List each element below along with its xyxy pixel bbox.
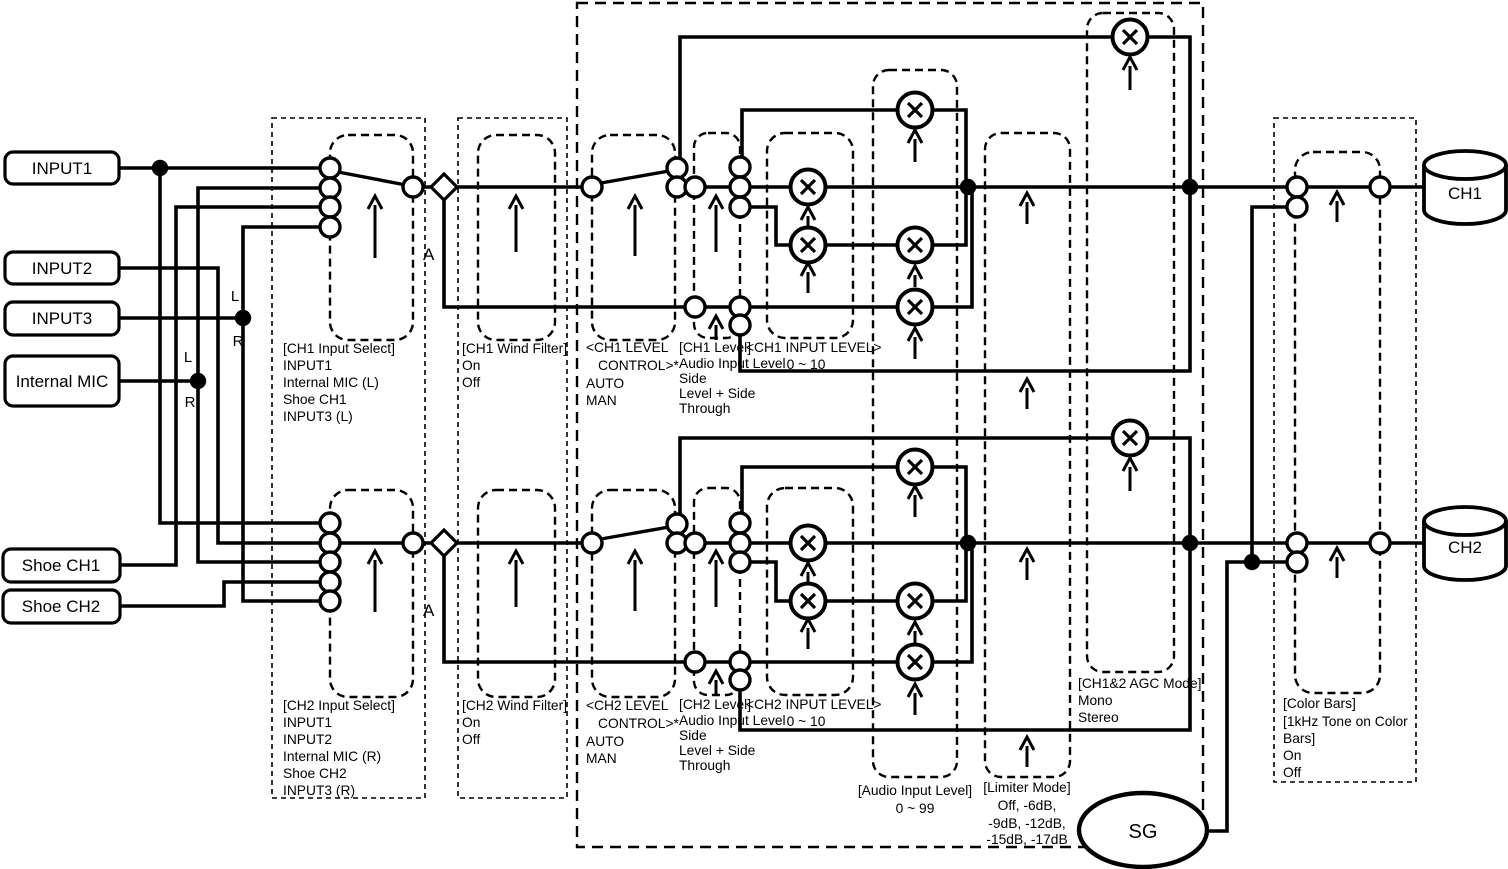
ch1-level-control-opt: AUTO: [586, 376, 624, 391]
ch2-level-control-opt: AUTO: [586, 734, 624, 749]
multiplier-icon: [791, 170, 826, 205]
limiter-mode-opt: Off, -6dB,: [998, 798, 1057, 813]
ch2-input-select-opt: INPUT3 (R): [283, 783, 355, 798]
mic-left-label: L: [184, 349, 192, 366]
input2-label: INPUT2: [32, 259, 92, 278]
contact-node: [403, 533, 423, 553]
color-bars-title2: [1kHz Tone on Color: [1283, 714, 1408, 729]
up-arrow-icon: [1123, 458, 1137, 491]
contact-node: [730, 533, 750, 553]
up-arrow-icon: [509, 196, 523, 252]
ch1-level-opt: Level + Side: [679, 386, 756, 401]
multiplier-icon: [898, 645, 933, 680]
agc-mode-opt: Mono: [1078, 693, 1113, 708]
signal-generator-label: SG: [1129, 821, 1158, 843]
cylinder-top: [1424, 151, 1506, 179]
switch-arm: [338, 172, 406, 185]
ch1-input-select-opt: INPUT1: [283, 358, 332, 373]
up-arrow-icon: [509, 551, 523, 607]
up-arrow-icon: [801, 563, 815, 582]
contact-node: [320, 197, 340, 217]
agc-mode-title: [CH1&2 AGC Mode]: [1078, 676, 1201, 691]
switch-arm: [601, 527, 669, 539]
color-bars-opt: Off: [1283, 765, 1301, 780]
junction-dot: [1182, 179, 1198, 195]
up-arrow-icon: [801, 619, 815, 649]
contact-node: [730, 552, 750, 572]
agc-mode-opt: Stereo: [1078, 710, 1119, 725]
cylinder-top: [1424, 507, 1506, 535]
dashed-option-box: [330, 490, 413, 697]
multiplier-icon: [898, 290, 933, 325]
ch2-level-opt: Side: [679, 728, 707, 743]
audio-block-diagram: INPUT1 INPUT2 INPUT3 Internal MIC Shoe C…: [0, 0, 1508, 869]
contact-node: [685, 652, 705, 672]
up-arrow-icon: [1020, 193, 1034, 224]
up-arrow-icon: [709, 551, 723, 607]
contact-node: [730, 670, 750, 690]
branch-a-ch2: A: [423, 601, 435, 620]
audio-input-level-range: 0 ~ 99: [896, 801, 935, 816]
up-arrow-icon: [628, 196, 642, 256]
ch2-level-opt: Audio Input Level: [679, 713, 786, 728]
contact-node: [685, 297, 705, 317]
multiplier-icon: [898, 584, 933, 619]
contact-node: [320, 533, 340, 553]
contact-node: [320, 572, 340, 592]
contact-node: [730, 177, 750, 197]
ch2-wind-filter-opt: On: [462, 715, 480, 730]
contact-node: [320, 158, 340, 178]
shoe-ch1-label: Shoe CH1: [22, 556, 100, 575]
ch1-wind-filter-opt: On: [462, 358, 480, 373]
up-arrow-icon: [801, 263, 815, 293]
color-bars-opt: On: [1283, 748, 1301, 763]
wire: [932, 467, 966, 543]
multiplier-icon: [898, 450, 933, 485]
up-arrow-icon: [908, 486, 922, 517]
contact-node: [1287, 552, 1307, 572]
branch-a-ch1: A: [423, 245, 435, 264]
shoe-ch2-label: Shoe CH2: [22, 597, 100, 616]
wire: [1252, 207, 1287, 562]
input3-left-label: L: [231, 288, 239, 305]
ch1-cylinder-label: CH1: [1448, 184, 1482, 203]
ch2-input-select-opt: INPUT2: [283, 732, 332, 747]
up-arrow-icon: [709, 196, 723, 252]
ch2-wind-filter-title: [CH2 Wind Filter]: [462, 698, 567, 713]
wire: [932, 110, 966, 187]
ch1-level-control-title: <CH1 LEVEL: [586, 340, 669, 355]
ch1-input-level-range: 0 ~ 10: [787, 357, 826, 372]
ch2-input-level-title: <CH2 INPUT LEVEL>: [746, 697, 881, 712]
dashed-option-box: [1087, 13, 1174, 672]
wire: [680, 37, 1190, 187]
ch2-level-opt: Level + Side: [679, 743, 756, 758]
contact-node: [1370, 533, 1390, 553]
ch1-input-level-title: <CH1 INPUT LEVEL>: [746, 340, 881, 355]
up-arrow-icon: [908, 622, 922, 643]
wire: [444, 200, 695, 307]
junction-dot: [190, 373, 206, 389]
up-arrow-icon: [908, 266, 922, 287]
ch1-wind-filter-title: [CH1 Wind Filter]: [462, 341, 567, 356]
contact-node: [667, 158, 687, 178]
ch1-level-opt: Side: [679, 371, 707, 386]
color-bars-title3: Bars]: [1283, 731, 1315, 746]
internal-mic-label: Internal MIC: [16, 372, 109, 391]
contact-node: [320, 178, 340, 198]
up-arrow-icon: [1330, 548, 1344, 578]
multiplier-icon: [791, 228, 826, 263]
limiter-mode-opt: -9dB, -12dB,: [988, 816, 1065, 831]
up-arrow-icon: [368, 551, 382, 612]
ch1-input-select-opt: INPUT3 (L): [283, 409, 353, 424]
up-arrow-icon: [628, 551, 642, 611]
up-arrow-icon: [908, 130, 922, 162]
contact-node: [320, 513, 340, 533]
branch-diamond: [431, 530, 457, 556]
audio-input-level-title: [Audio Input Level]: [858, 783, 972, 798]
multiplier-icon: [791, 526, 826, 561]
up-arrow-icon: [1330, 192, 1344, 222]
ch1-input-select-title: [CH1 Input Select]: [283, 341, 395, 356]
up-arrow-icon: [908, 684, 922, 715]
contact-node: [730, 315, 750, 335]
wire: [742, 467, 898, 514]
junction-dot: [152, 160, 168, 176]
up-arrow-icon: [1020, 737, 1034, 767]
branch-diamond: [431, 174, 457, 200]
contact-node: [1370, 177, 1390, 197]
up-arrow-icon: [801, 207, 815, 226]
up-arrow-icon: [1020, 379, 1034, 409]
multiplier-icon: [1113, 421, 1148, 456]
wire: [444, 556, 695, 662]
wire: [932, 187, 966, 245]
wire: [742, 110, 898, 158]
ch1-input-select-opt: Internal MIC (L): [283, 375, 379, 390]
limiter-mode-title: [Limiter Mode]: [983, 780, 1070, 795]
contact-node: [730, 197, 750, 217]
dashed-option-box: [985, 133, 1070, 777]
wire: [680, 438, 1190, 543]
junction-dot: [1244, 554, 1260, 570]
switch-arm: [601, 171, 669, 183]
contact-node: [730, 157, 750, 177]
multiplier-icon: [898, 228, 933, 263]
junction-dot: [235, 310, 251, 326]
limiter-mode-opt: -15dB, -17dB: [986, 832, 1067, 847]
up-arrow-icon: [368, 196, 382, 258]
contact-node: [1287, 197, 1307, 217]
ch1-level-control-title2: CONTROL>*: [598, 358, 680, 373]
contact-node: [320, 217, 340, 237]
contact-node: [1287, 177, 1307, 197]
contact-node: [1287, 533, 1307, 553]
junction-dot: [960, 535, 976, 551]
mic-right-label: R: [185, 394, 196, 411]
ch1-level-control-opt: MAN: [586, 393, 617, 408]
up-arrow-icon: [908, 328, 922, 359]
multiplier-icon: [898, 93, 933, 128]
ch2-level-control-opt: MAN: [586, 751, 617, 766]
switch-arms: [338, 171, 669, 543]
junction-dot: [960, 179, 976, 195]
dashed-option-box: [1295, 152, 1380, 693]
ch2-input-select-opt: INPUT1: [283, 715, 332, 730]
ch2-wind-filter-opt: Off: [462, 732, 480, 747]
ch1-wind-filter-opt: Off: [462, 375, 480, 390]
up-arrow-icon: [1020, 549, 1034, 580]
wire: [932, 543, 966, 601]
ch2-level-control-title2: CONTROL>*: [598, 716, 680, 731]
ch2-cylinder-label: CH2: [1448, 538, 1482, 557]
up-arrow-icon: [709, 316, 723, 340]
junction-dot: [1182, 535, 1198, 551]
ch2-input-select-opt: Shoe CH2: [283, 766, 347, 781]
ch2-input-level-range: 0 ~ 10: [787, 714, 826, 729]
ch1-level-opt: Audio Input Level: [679, 356, 786, 371]
contact-node: [582, 533, 602, 553]
input3-right-label: R: [233, 333, 244, 350]
ch2-level-title: [CH2 Level]: [679, 697, 751, 712]
dashed-boxes: [272, 3, 1416, 847]
multiplier-icon: [791, 584, 826, 619]
contact-node: [403, 177, 423, 197]
wire: [243, 227, 320, 318]
contact-node: [667, 514, 687, 534]
ch2-input-select-title: [CH2 Input Select]: [283, 698, 395, 713]
contact-node: [320, 552, 340, 572]
input3-label: INPUT3: [32, 309, 92, 328]
contact-node: [730, 513, 750, 533]
diagram-canvas: INPUT1 INPUT2 INPUT3 Internal MIC Shoe C…: [0, 0, 1508, 869]
contact-node: [685, 177, 705, 197]
contact-node: [582, 177, 602, 197]
ch2-input-select-opt: Internal MIC (R): [283, 749, 381, 764]
dashed-option-box: [330, 135, 413, 340]
color-bars-title: [Color Bars]: [1283, 696, 1356, 711]
input1-label: INPUT1: [32, 159, 92, 178]
up-arrow-icon: [709, 671, 723, 695]
ch1-input-select-opt: Shoe CH1: [283, 392, 347, 407]
ch1-level-title: [CH1 Level]: [679, 340, 751, 355]
multiplier-icon: [1113, 20, 1148, 55]
contact-node: [685, 533, 705, 553]
contact-node: [320, 591, 340, 611]
ch2-level-control-title: <CH2 LEVEL: [586, 698, 669, 713]
up-arrow-icon: [1123, 57, 1137, 90]
ch1-level-opt: Through: [679, 401, 730, 416]
ch2-level-opt: Through: [679, 758, 730, 773]
